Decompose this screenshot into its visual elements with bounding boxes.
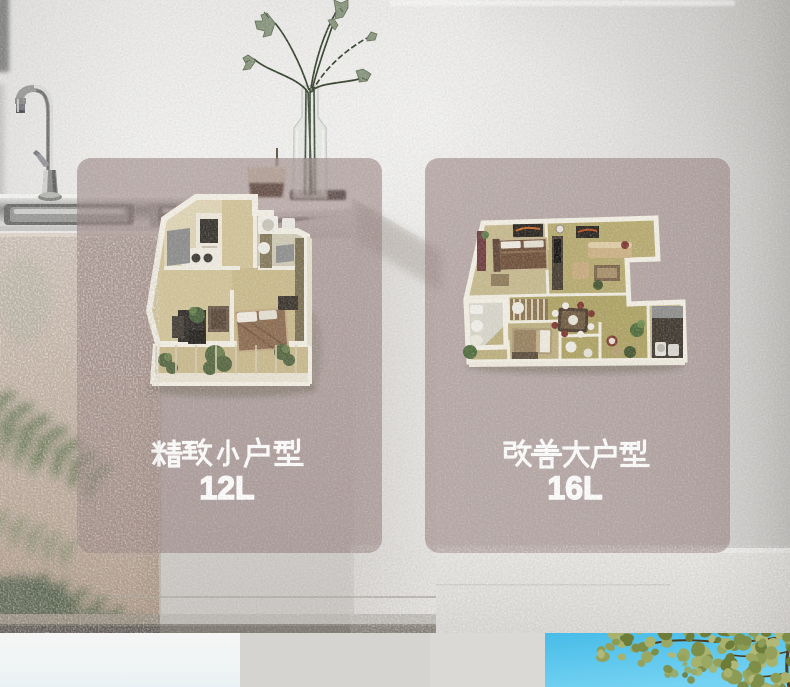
svg-text:16L: 16L [547, 470, 602, 506]
svg-text:12L: 12L [199, 470, 254, 506]
